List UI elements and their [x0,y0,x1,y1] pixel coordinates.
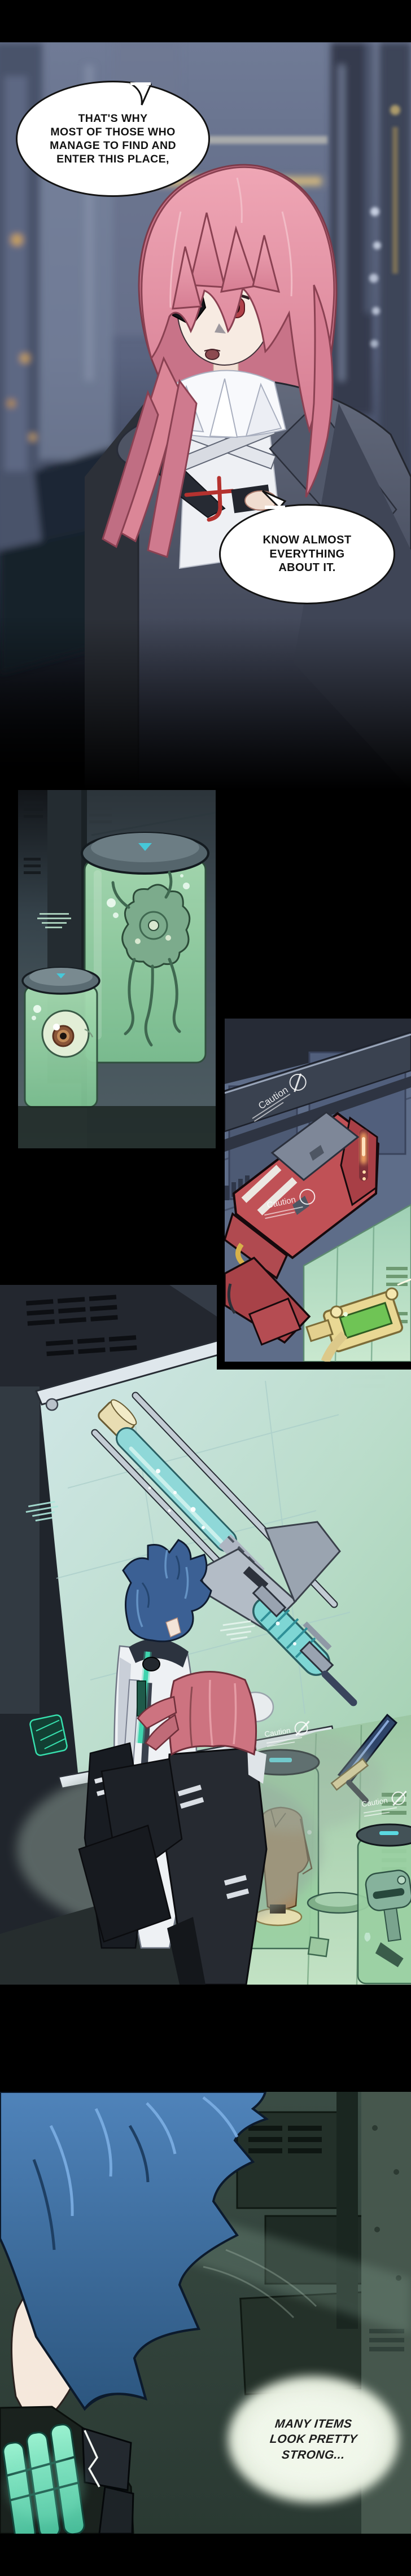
bubble-tail [260,490,286,509]
panel-2-art [18,790,216,1148]
speech-bubble-2: KNOW ALMOST EVERYTHING ABOUT IT. [219,504,395,604]
bubble-tail [128,82,153,106]
panel-4-art [0,1285,411,1985]
caution-circle-icon [293,1721,308,1736]
caution-circle-icon [390,1791,405,1806]
bubble-line: MANY ITEMS [274,2416,352,2432]
panel-1-eyepatch-woman: THAT'S WHY MOST OF THOSE WHO MANAGE TO F… [0,42,411,790]
glove-hand [143,1657,160,1671]
tank-robot-head [357,1824,411,1983]
bubble-line: ABOUT IT. [278,561,335,575]
tank-tentacle-creature [82,833,208,1063]
webtoon-page: THAT'S WHY MOST OF THOSE WHO MANAGE TO F… [0,0,411,2576]
tank-eyeball [23,968,99,1107]
open-mouth [204,349,220,359]
bubble-line: THAT'S WHY [78,112,147,125]
glow-pack [29,1714,68,1756]
bottom-fade [0,618,411,790]
cube-item [308,1937,329,1956]
panel-3-caution-device: Caution Caution [225,1019,411,1362]
bubble-line: STRONG... [281,2447,346,2463]
panel-4-showcase-room: Caution Caution [0,1285,411,1985]
bubble-line: KNOW ALMOST [263,533,352,547]
bubble-line: MANAGE TO FIND AND [50,139,176,152]
bubble-line: ENTER THIS PLACE, [56,152,169,166]
bubble-line: MOST OF THOSE WHO [50,125,175,139]
speech-bubble-1: THAT'S WHY MOST OF THOSE WHO MANAGE TO F… [16,81,210,197]
panel-5-blue-haired-man: MANY ITEMS LOOK PRETTY STRONG... [0,2092,411,2534]
speech-bubble-3: MANY ITEMS LOOK PRETTY STRONG... [225,2373,402,2506]
caution-circle-icon [298,1187,316,1206]
bubble-line: LOOK PRETTY [269,2432,358,2447]
panel-2-specimen-tanks [18,790,216,1148]
panel-3-art [225,1019,411,1362]
bubble-line: EVERYTHING [269,547,344,561]
